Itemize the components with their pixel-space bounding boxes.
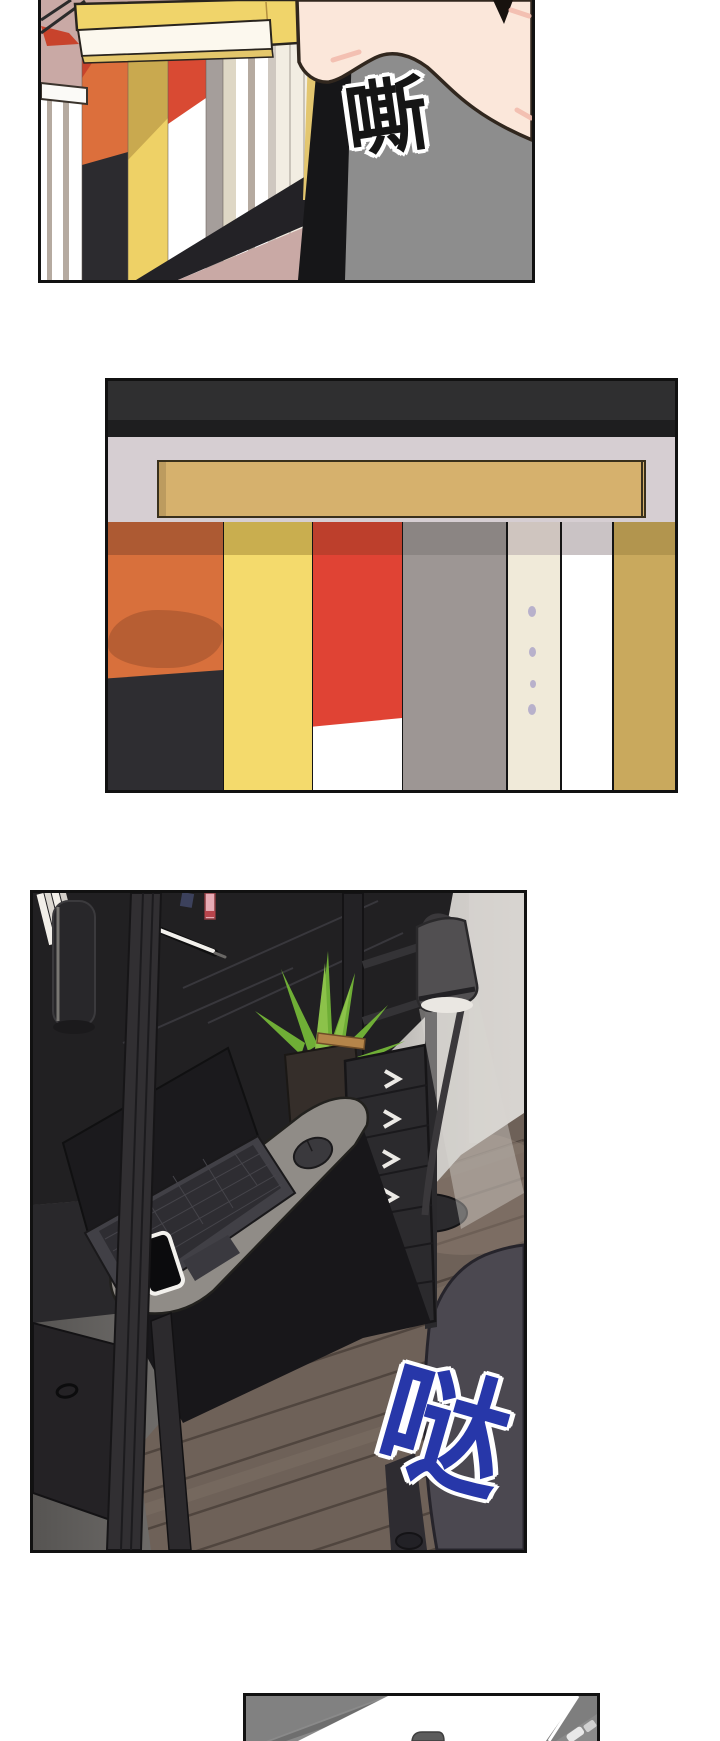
panel1-art: [41, 0, 532, 280]
red-white-base: [313, 718, 402, 790]
spine-dot: [528, 606, 536, 617]
lamp-glow: [421, 997, 473, 1013]
spine-dot: [529, 647, 536, 657]
book-top-shadow: [403, 522, 506, 555]
shelf-frame-top: [108, 381, 675, 420]
book-top-shadow: [313, 522, 402, 555]
book-top-shadow: [224, 522, 312, 555]
orange-smear: [108, 610, 223, 668]
panel4-art: [246, 1696, 597, 1741]
book-spine: [63, 100, 69, 280]
book-red: [313, 522, 402, 790]
cylinder-bottom: [53, 1020, 95, 1034]
book-gray: [403, 522, 506, 790]
marker-band: [205, 911, 215, 917]
board-left-shade: [159, 462, 166, 516]
book-white: [562, 522, 612, 790]
dark-tab: [412, 1732, 444, 1741]
book-spine: [41, 100, 47, 280]
book-top-shadow: [108, 522, 223, 555]
panel-bookshelf-hand: [38, 0, 535, 283]
book-spine: [69, 100, 82, 280]
book-yellow: [224, 522, 312, 790]
shelf-frame-top-dark: [108, 420, 675, 437]
comic-page: 嘶 哒: [0, 0, 720, 1741]
book-cream-dotted: [508, 522, 560, 790]
spine-dot: [530, 680, 536, 688]
desk-lamp-base-cylinder: [53, 901, 95, 1034]
orange-book-base: [82, 152, 128, 280]
book-row: [108, 522, 675, 790]
board-end-edge: [641, 462, 643, 516]
book-top-shadow: [614, 522, 675, 555]
book-top-shadow: [508, 522, 560, 555]
dark-blue-item: [180, 893, 194, 908]
book-orange: [108, 522, 223, 790]
book-spine: [47, 100, 52, 280]
book-tan: [614, 522, 675, 790]
sfx-shhk: 嘶: [341, 73, 434, 166]
orange-black-base: [108, 670, 223, 790]
panel-book-spines-row: [105, 378, 678, 793]
spine-dot: [528, 704, 536, 715]
panel-desk-overhead: [243, 1693, 600, 1741]
book-top-shadow: [562, 522, 612, 555]
book-spine: [52, 100, 63, 280]
shelf-board: [157, 460, 646, 518]
chair-wheel: [396, 1533, 422, 1549]
